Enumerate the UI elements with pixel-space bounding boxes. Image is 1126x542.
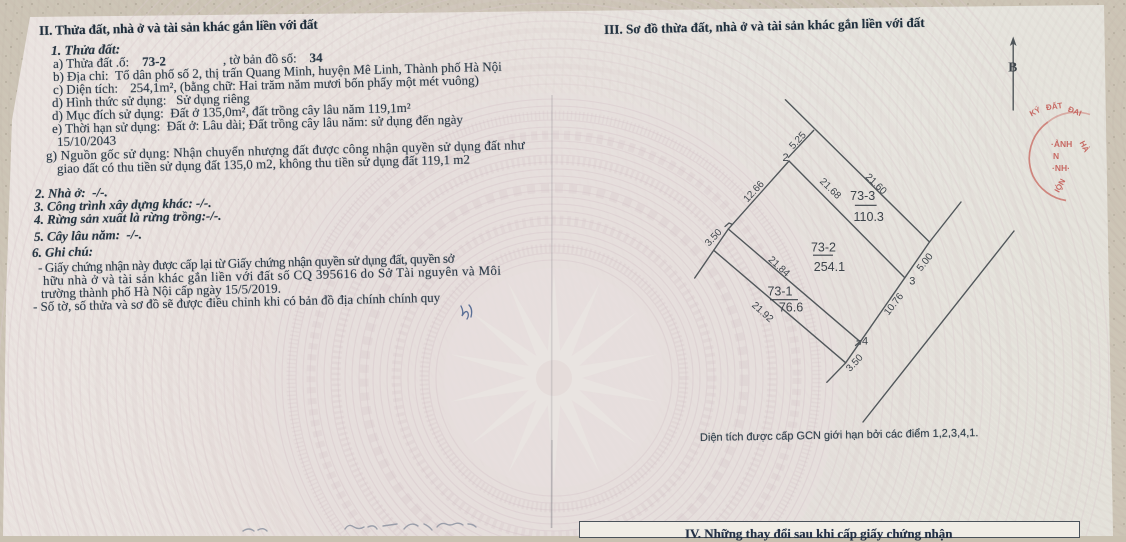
svg-text:KÝ: KÝ <box>1028 105 1043 118</box>
svg-text:N: N <box>1053 151 1059 161</box>
svg-text:NỘI: NỘI <box>1052 177 1067 194</box>
svg-text:·NH·: ·NH· <box>1052 163 1070 173</box>
svg-text:ĐAI: ĐAI <box>1067 105 1083 119</box>
svg-text:HÀ: HÀ <box>1078 139 1091 154</box>
svg-text:·ẢNH: ·ẢNH <box>1051 138 1072 149</box>
svg-text:ĐẤT: ĐẤT <box>1045 100 1063 112</box>
